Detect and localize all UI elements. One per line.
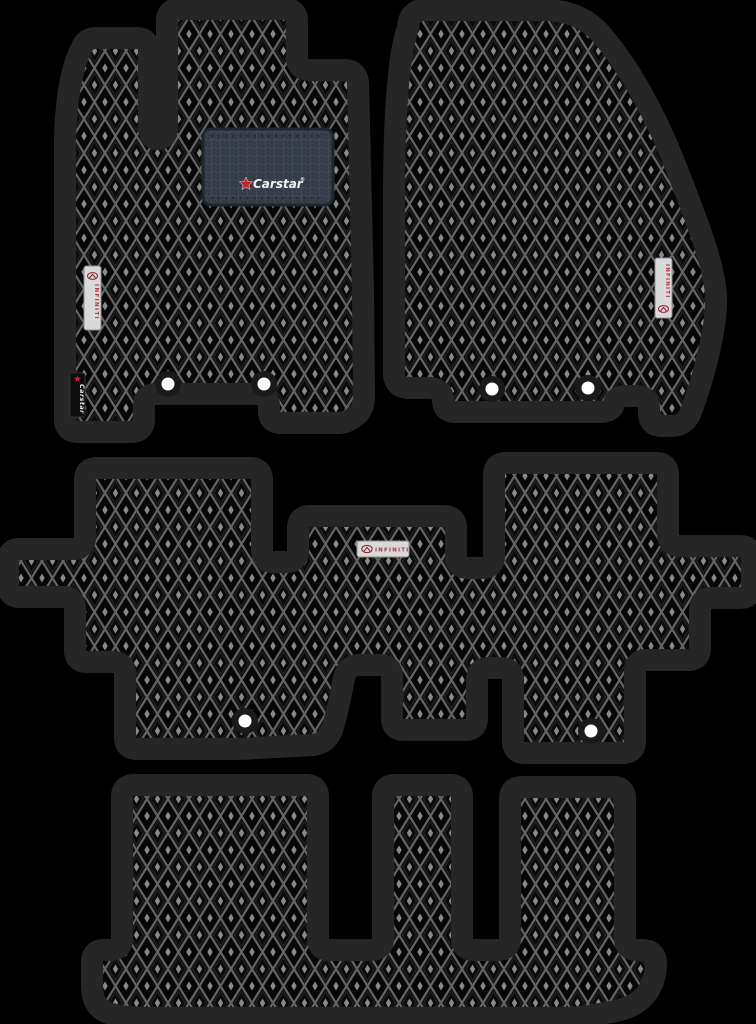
passenger-infiniti-tag-text: INFINITI — [664, 264, 670, 299]
passenger-mat: INFINITI — [394, 10, 716, 426]
second-row-mat-shape — [8, 463, 752, 753]
second-row-mat: INFINITI — [8, 463, 752, 753]
third-row-mat — [92, 785, 656, 1018]
driver-infiniti-tag: INFINITI — [84, 266, 101, 330]
second-row-infiniti-tag: INFINITI — [357, 541, 410, 557]
floor-mat-set-image: Carstar ® INFINITI Carstar — [0, 0, 756, 1024]
second-row-fastener-1 — [232, 708, 258, 734]
carstar-logo-text: Carstar — [253, 177, 304, 191]
driver-carstar-tag: Carstar — [70, 373, 86, 417]
passenger-mat-shape — [394, 10, 716, 426]
driver-heel-pad: Carstar ® — [203, 129, 333, 205]
driver-mat-shape — [65, 9, 364, 432]
carstar-registered-mark: ® — [300, 177, 305, 183]
driver-mat: Carstar ® INFINITI Carstar — [65, 9, 364, 432]
passenger-fastener-2 — [575, 375, 601, 401]
passenger-fastener-1 — [479, 376, 505, 402]
driver-carstar-tag-text: Carstar — [78, 384, 86, 414]
third-row-mat-shape — [92, 785, 656, 1018]
product-photo: Carstar ® INFINITI Carstar — [0, 0, 756, 1024]
second-row-fastener-2 — [578, 718, 604, 744]
driver-fastener-2 — [251, 371, 277, 397]
second-row-infiniti-tag-text: INFINITI — [375, 548, 410, 554]
driver-fastener-1 — [155, 371, 181, 397]
passenger-infiniti-tag: INFINITI — [655, 258, 672, 318]
driver-infiniti-tag-text: INFINITI — [93, 284, 99, 320]
